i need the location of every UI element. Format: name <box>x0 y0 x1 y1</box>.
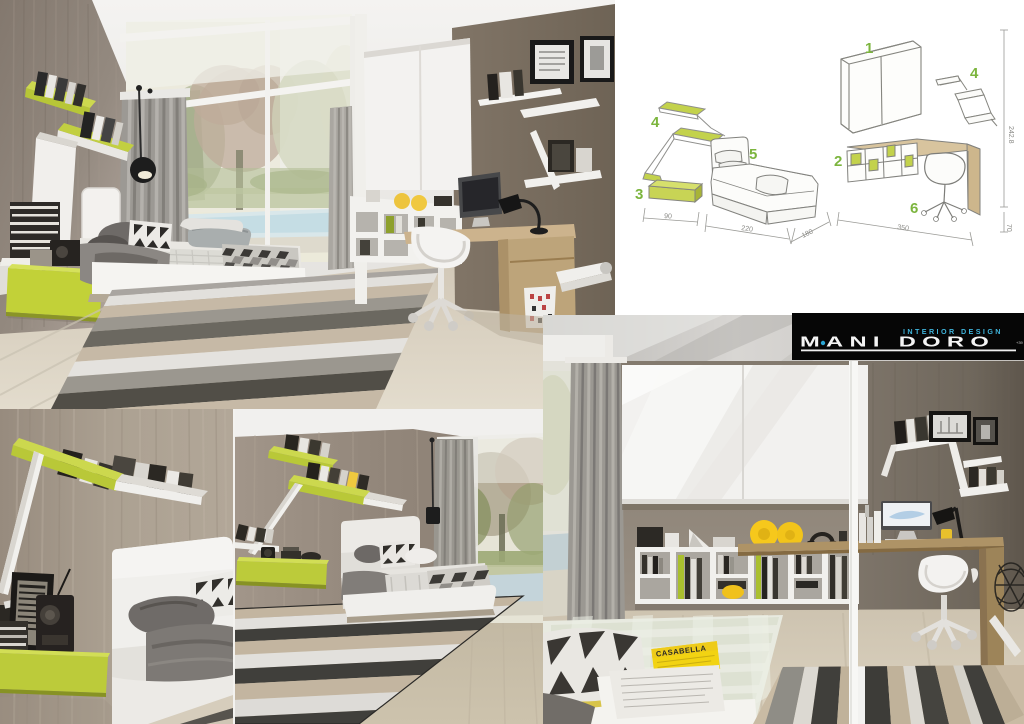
svg-text:70: 70 <box>1005 224 1012 232</box>
svg-text:4: 4 <box>970 65 979 82</box>
svg-text:6: 6 <box>910 200 918 217</box>
svg-text:180: 180 <box>801 228 815 239</box>
svg-text:5: 5 <box>749 146 757 163</box>
svg-text:3: 3 <box>635 186 643 203</box>
svg-text:242.8: 242.8 <box>1007 126 1014 144</box>
svg-text:4: 4 <box>651 114 660 131</box>
svg-text:220: 220 <box>741 225 754 234</box>
svg-text:+39: +39 <box>1016 340 1024 345</box>
svg-text:2: 2 <box>834 153 842 170</box>
svg-text:90: 90 <box>664 213 672 221</box>
svg-text:MANI DORO: MANI DORO <box>800 334 995 351</box>
svg-text:350: 350 <box>897 224 910 233</box>
svg-text:1: 1 <box>865 40 873 57</box>
